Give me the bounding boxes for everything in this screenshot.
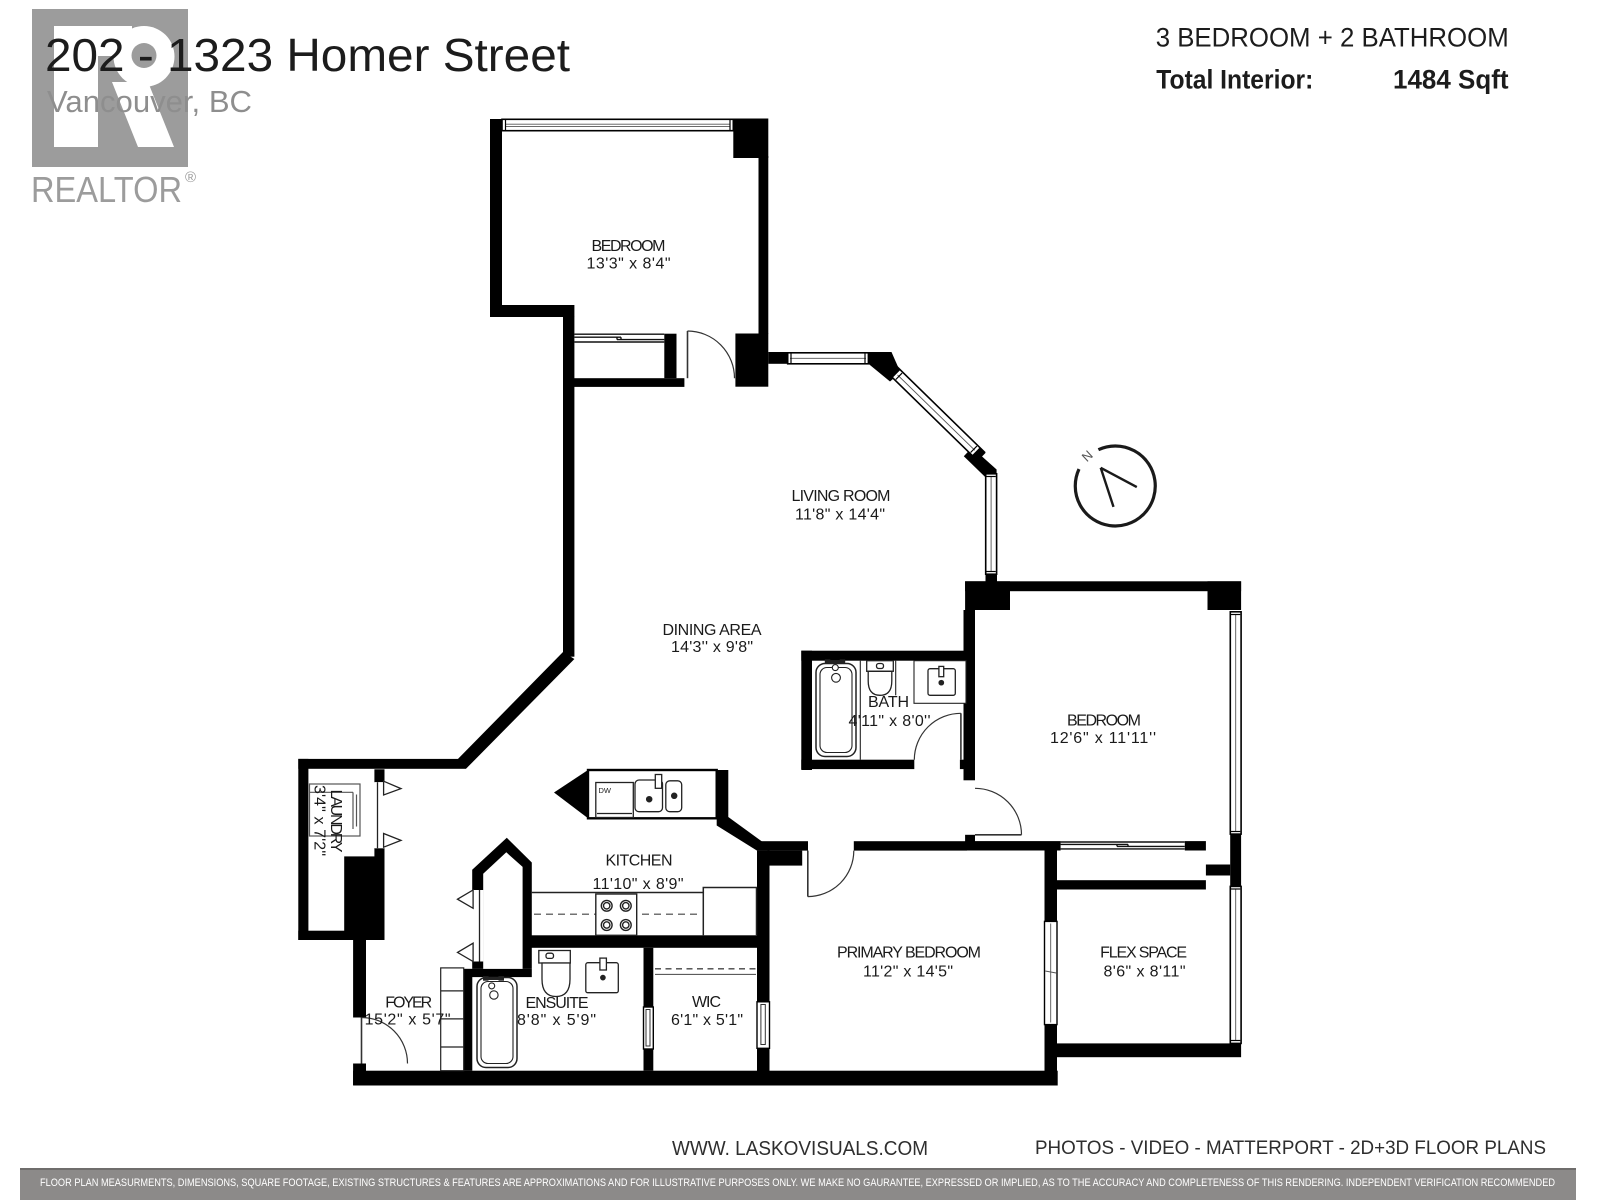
- svg-text:DINING AREA14'3'' x 9'8": DINING AREA14'3'' x 9'8": [663, 622, 762, 656]
- svg-text:Total Interior:: Total Interior:: [1156, 65, 1313, 95]
- svg-text:Vancouver, BC: Vancouver, BC: [47, 84, 252, 119]
- svg-text:PHOTOS - VIDEO - MATTERPORT -: PHOTOS - VIDEO - MATTERPORT - 2D+3D FLOO…: [1035, 1137, 1546, 1159]
- svg-text:BEDROOM13'3" x 8'4": BEDROOM13'3" x 8'4": [587, 238, 671, 273]
- svg-text:FLEX SPACE8'6" x 8'11": FLEX SPACE8'6" x 8'11": [1100, 945, 1187, 981]
- svg-text:202 - 1323 Homer Street: 202 - 1323 Homer Street: [45, 29, 570, 81]
- svg-text:1484 Sqft: 1484 Sqft: [1393, 65, 1509, 95]
- svg-text:3 BEDROOM + 2 BATHROOM: 3 BEDROOM + 2 BATHROOM: [1156, 23, 1509, 53]
- svg-text:ENSUITE8'8" x 5'9": ENSUITE8'8" x 5'9": [517, 995, 596, 1029]
- svg-text:REALTOR: REALTOR: [31, 169, 182, 210]
- svg-text:LIVING ROOM11'8" x 14'4": LIVING ROOM11'8" x 14'4": [792, 488, 891, 524]
- svg-text:WWW. LASKOVISUALS.COM: WWW. LASKOVISUALS.COM: [672, 1137, 928, 1160]
- svg-text:LAUNDRY3'4" x 7'2": LAUNDRY3'4" x 7'2": [311, 785, 345, 856]
- svg-text:®: ®: [185, 169, 196, 186]
- svg-text:DW: DW: [599, 786, 612, 795]
- svg-text:FLOOR PLAN MEASURMENTS, DIMENS: FLOOR PLAN MEASURMENTS, DIMENSIONS, SQUA…: [40, 1177, 1555, 1189]
